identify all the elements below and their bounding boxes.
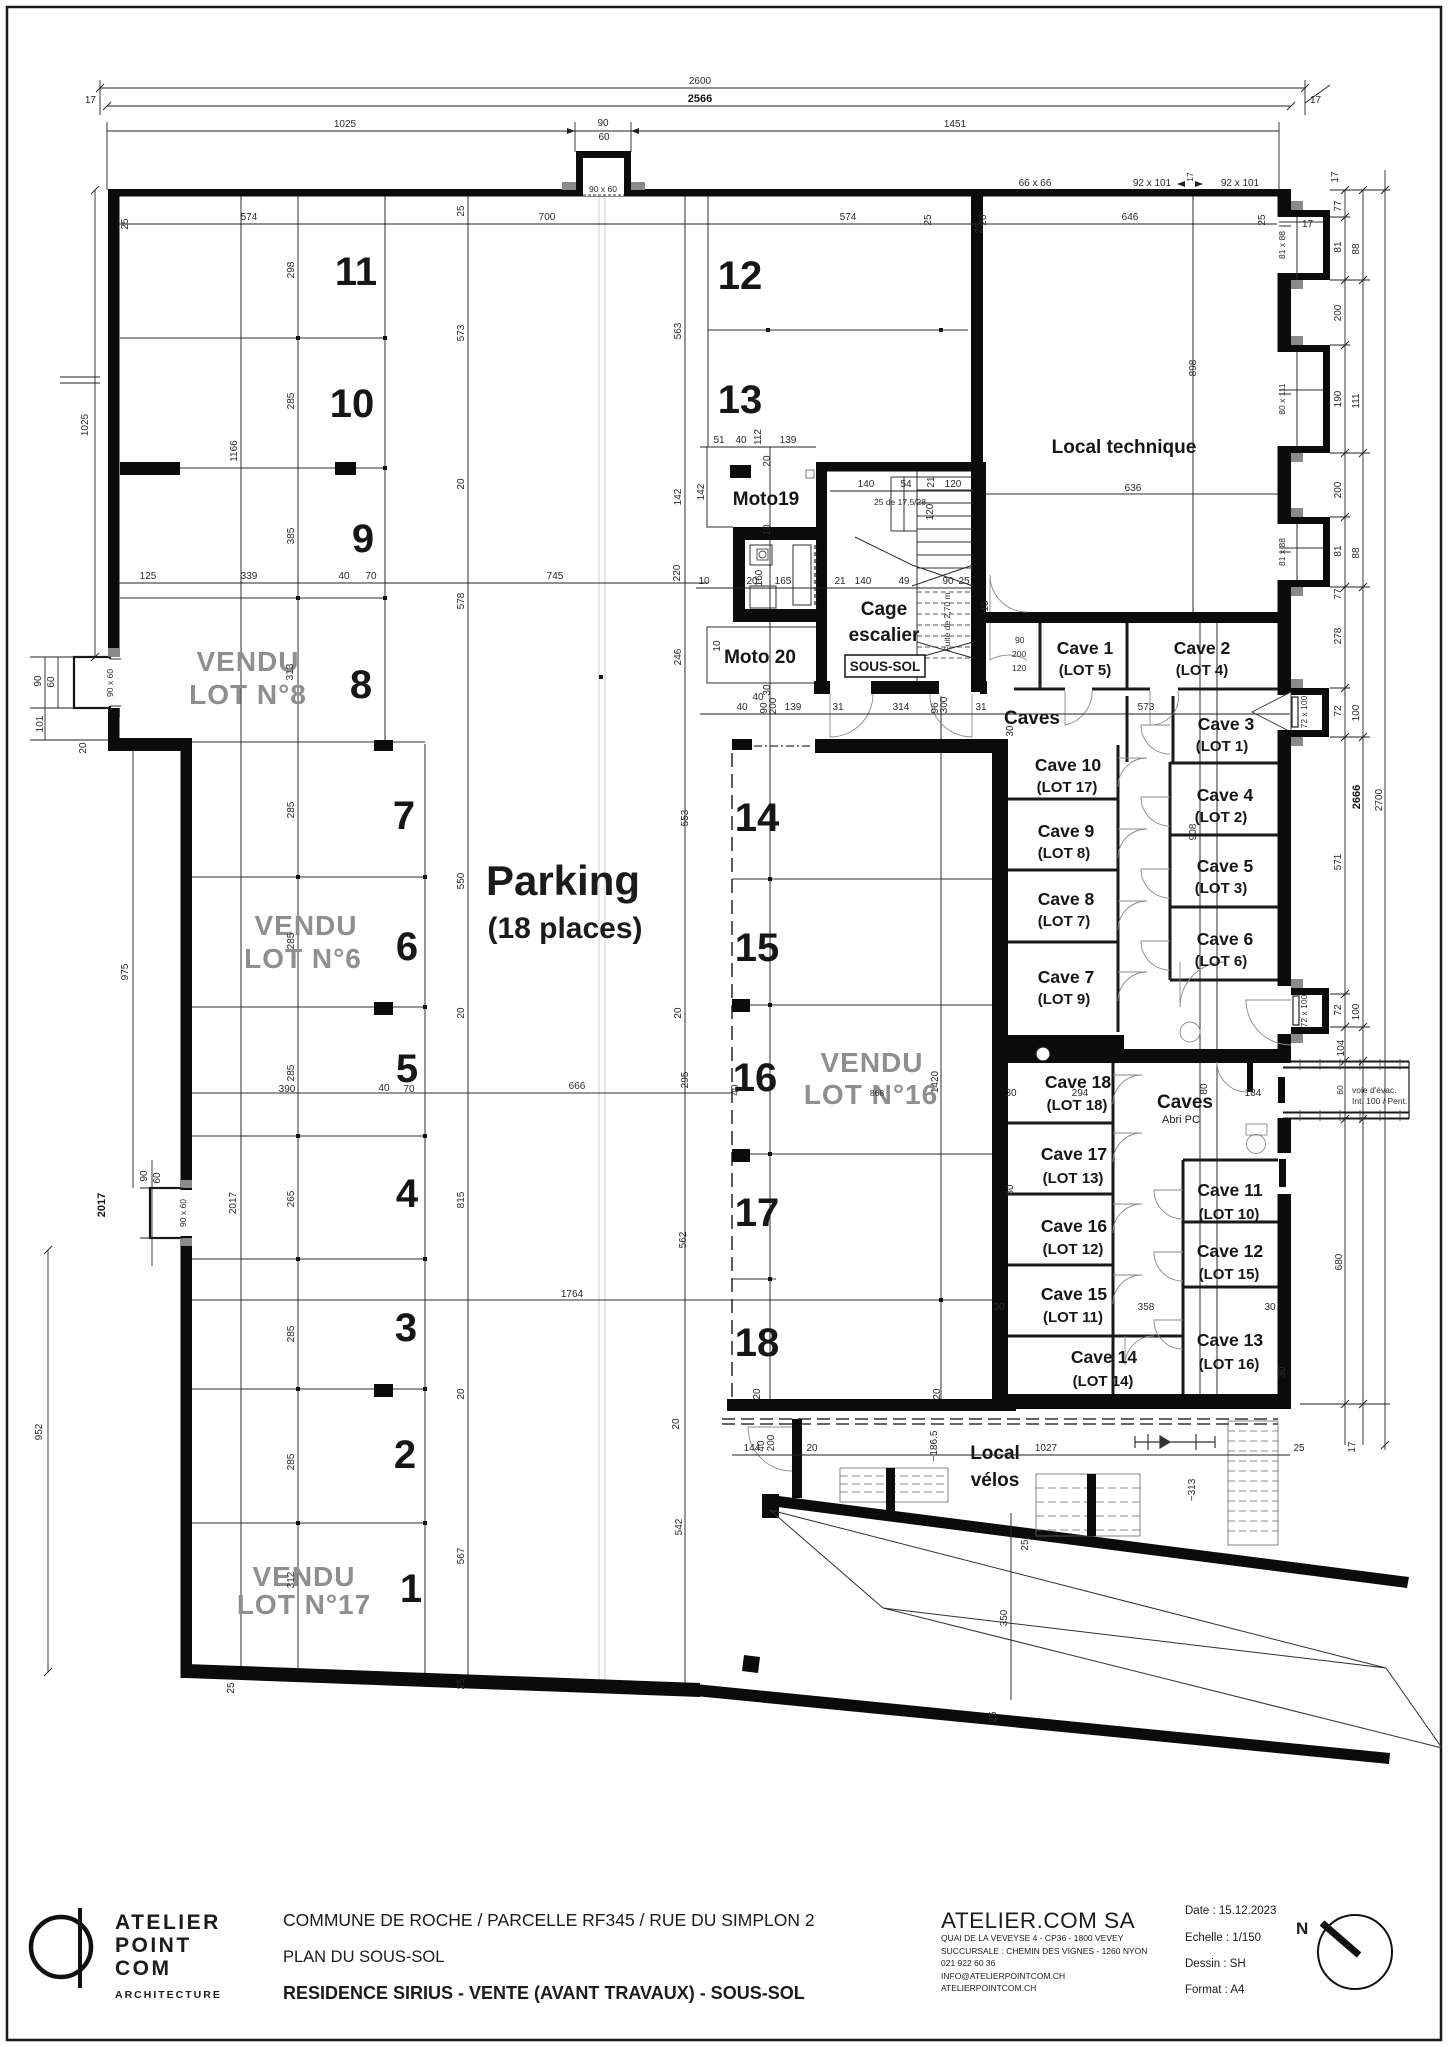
svg-text:17: 17 (1347, 1441, 1358, 1453)
svg-text:21: 21 (926, 476, 937, 488)
svg-text:(LOT 17): (LOT 17) (1037, 779, 1098, 796)
svg-text:142: 142 (696, 483, 707, 500)
svg-text:385: 385 (286, 527, 297, 544)
svg-text:80: 80 (1199, 1083, 1210, 1095)
svg-text:1166: 1166 (229, 440, 240, 462)
svg-text:SUCCURSALE : CHEMIN DES VIGNES: SUCCURSALE : CHEMIN DES VIGNES - 1260 NY… (941, 1946, 1147, 1956)
svg-text:(LOT 9): (LOT 9) (1038, 991, 1091, 1008)
svg-text:70: 70 (365, 571, 377, 582)
svg-text:101: 101 (35, 715, 46, 732)
svg-text:745: 745 (547, 571, 564, 582)
svg-text:(LOT 6): (LOT 6) (1195, 953, 1248, 970)
svg-text:3: 3 (395, 1306, 417, 1350)
svg-text:Local: Local (970, 1443, 1020, 1464)
svg-text:18: 18 (735, 1321, 780, 1365)
svg-text:285: 285 (286, 1453, 297, 1470)
svg-text:285: 285 (286, 932, 297, 949)
svg-text:975: 975 (120, 963, 131, 980)
svg-text:17: 17 (1330, 171, 1341, 183)
svg-text:72 x 100: 72 x 100 (1299, 695, 1309, 728)
svg-text:40: 40 (378, 1083, 390, 1094)
svg-text:(LOT 8): (LOT 8) (1038, 845, 1091, 862)
svg-text:25: 25 (958, 576, 970, 587)
svg-text:8: 8 (350, 663, 372, 707)
svg-text:Cave 10: Cave 10 (1035, 755, 1101, 775)
svg-text:INFO@ATELIERPOINTCOM.CH: INFO@ATELIERPOINTCOM.CH (941, 1971, 1065, 1981)
svg-text:Cave 17: Cave 17 (1041, 1144, 1107, 1164)
svg-text:17: 17 (735, 1191, 780, 1235)
svg-text:(LOT 4): (LOT 4) (1176, 662, 1229, 679)
svg-text:30: 30 (1277, 1366, 1288, 1378)
svg-text:390: 390 (279, 1084, 296, 1095)
svg-text:120: 120 (925, 503, 936, 520)
svg-text:(LOT 15): (LOT 15) (1199, 1266, 1260, 1283)
svg-text:VENDU: VENDU (820, 1047, 923, 1078)
svg-text:104: 104 (1336, 1039, 1347, 1056)
svg-text:021 922 60 36: 021 922 60 36 (941, 1958, 996, 1968)
svg-text:Cave 9: Cave 9 (1038, 821, 1095, 841)
svg-text:77: 77 (1333, 200, 1344, 212)
svg-text:81: 81 (1333, 545, 1344, 557)
svg-text:(LOT 2): (LOT 2) (1195, 809, 1248, 826)
svg-text:(18 places): (18 places) (487, 912, 642, 945)
svg-text:562: 562 (678, 1231, 689, 1248)
svg-text:escalier: escalier (849, 625, 920, 646)
svg-text:200: 200 (768, 697, 779, 714)
svg-text:60: 60 (598, 132, 610, 143)
svg-text:20: 20 (671, 1418, 682, 1430)
svg-text:220: 220 (672, 564, 683, 581)
svg-text:60: 60 (1335, 1085, 1345, 1095)
svg-text:20: 20 (456, 1007, 467, 1019)
svg-text:142: 142 (673, 488, 684, 505)
svg-text:Echelle : 1/150: Echelle : 1/150 (1185, 1932, 1261, 1944)
svg-text:285: 285 (286, 392, 297, 409)
svg-text:Cave 2: Cave 2 (1174, 638, 1231, 658)
svg-text:1027: 1027 (1035, 1443, 1058, 1454)
svg-text:Parking: Parking (486, 857, 640, 904)
svg-text:(LOT 12): (LOT 12) (1043, 1241, 1104, 1258)
svg-text:(LOT 3): (LOT 3) (1195, 880, 1248, 897)
svg-text:30: 30 (1005, 1184, 1016, 1196)
svg-text:573: 573 (1138, 702, 1155, 713)
svg-text:10: 10 (762, 524, 773, 536)
svg-text:30: 30 (762, 684, 773, 696)
svg-text:25: 25 (1020, 1539, 1031, 1551)
svg-text:200: 200 (1012, 649, 1026, 659)
svg-text:SOUS-SOL: SOUS-SOL (850, 659, 921, 674)
svg-text:550: 550 (456, 872, 467, 889)
svg-text:Moto19: Moto19 (733, 489, 800, 510)
svg-text:30: 30 (1005, 1088, 1017, 1099)
svg-text:165: 165 (775, 576, 792, 587)
svg-text:574: 574 (840, 212, 857, 223)
svg-text:680: 680 (1334, 1253, 1345, 1270)
svg-text:COMMUNE DE ROCHE / PARCELLE RF: COMMUNE DE ROCHE / PARCELLE RF345 / RUE … (283, 1910, 815, 1930)
svg-text:350: 350 (999, 1609, 1010, 1626)
svg-text:voie d'évac.: voie d'évac. (1352, 1085, 1397, 1095)
svg-text:4: 4 (396, 1172, 419, 1216)
svg-text:25: 25 (1257, 214, 1268, 226)
svg-text:N: N (1296, 1919, 1308, 1938)
svg-text:Fuite de 2,70 m: Fuite de 2,70 m (942, 592, 952, 651)
svg-text:vélos: vélos (971, 1470, 1020, 1491)
svg-text:Int. 100 / Pent.: Int. 100 / Pent. (1352, 1096, 1407, 1106)
svg-text:COM: COM (115, 1957, 172, 1980)
svg-text:140: 140 (858, 479, 875, 490)
svg-text:25: 25 (456, 205, 467, 217)
svg-text:200: 200 (1333, 304, 1344, 321)
svg-text:(LOT 5): (LOT 5) (1059, 662, 1112, 679)
svg-text:246: 246 (673, 648, 684, 665)
svg-text:(LOT 7): (LOT 7) (1038, 913, 1091, 930)
svg-text:17: 17 (1310, 95, 1322, 106)
svg-text:ARCHITECTURE: ARCHITECTURE (115, 1989, 222, 2001)
svg-text:Cave 14: Cave 14 (1071, 1347, 1137, 1367)
svg-text:40: 40 (730, 1084, 741, 1096)
svg-text:578: 578 (456, 592, 467, 609)
svg-text:Format : A4: Format : A4 (1185, 1984, 1245, 1996)
svg-text:20: 20 (456, 478, 467, 490)
svg-text:2666: 2666 (1351, 785, 1363, 809)
svg-text:636: 636 (1125, 483, 1142, 494)
svg-text:14: 14 (735, 796, 780, 840)
svg-text:100: 100 (1351, 704, 1362, 721)
svg-text:7: 7 (393, 794, 415, 838)
svg-text:125: 125 (140, 571, 157, 582)
svg-text:573: 573 (456, 324, 467, 341)
svg-text:QUAI DE LA VEVEYSE 4 - CP36 -: QUAI DE LA VEVEYSE 4 - CP36 - 1800 VEVEY (941, 1933, 1124, 1943)
svg-text:567: 567 (456, 1547, 467, 1564)
svg-text:81: 81 (1333, 241, 1344, 253)
svg-text:72: 72 (1333, 1004, 1344, 1016)
svg-text:17: 17 (85, 95, 97, 106)
svg-text:25: 25 (923, 214, 934, 226)
svg-text:60: 60 (152, 1172, 163, 1184)
svg-text:300: 300 (939, 696, 950, 713)
svg-text:563: 563 (673, 322, 684, 339)
svg-text:358: 358 (1138, 1302, 1155, 1313)
svg-text:LOT N°17: LOT N°17 (237, 1589, 371, 1620)
svg-text:574: 574 (241, 212, 258, 223)
svg-text:Cave 1: Cave 1 (1057, 638, 1114, 658)
svg-text:298: 298 (286, 261, 297, 278)
svg-text:90: 90 (139, 1170, 150, 1182)
svg-text:Date : 15.12.2023: Date : 15.12.2023 (1185, 1905, 1276, 1917)
svg-text:Moto 20: Moto 20 (724, 647, 796, 668)
svg-text:92 x 101: 92 x 101 (1221, 178, 1260, 189)
svg-text:898: 898 (1188, 359, 1199, 376)
svg-text:20: 20 (456, 1388, 467, 1400)
svg-text:17: 17 (1185, 172, 1195, 182)
svg-text:~186.5: ~186.5 (929, 1430, 940, 1461)
svg-text:120: 120 (945, 479, 962, 490)
svg-text:15: 15 (980, 600, 991, 612)
svg-text:90 x 60: 90 x 60 (178, 1199, 188, 1227)
svg-text:20: 20 (762, 455, 773, 467)
svg-text:PLAN DU SOUS-SOL: PLAN DU SOUS-SOL (283, 1948, 444, 1966)
svg-text:25: 25 (974, 222, 985, 234)
svg-text:Cave 5: Cave 5 (1197, 856, 1254, 876)
svg-text:666: 666 (569, 1081, 586, 1092)
svg-text:952: 952 (34, 1423, 45, 1440)
svg-text:139: 139 (785, 702, 802, 713)
svg-text:51: 51 (713, 435, 725, 446)
svg-text:POINT: POINT (115, 1934, 192, 1957)
svg-text:LOT N°8: LOT N°8 (189, 679, 307, 710)
svg-text:31: 31 (832, 702, 844, 713)
svg-text:(LOT 11): (LOT 11) (1043, 1309, 1103, 1326)
svg-text:2600: 2600 (689, 76, 712, 87)
svg-text:30: 30 (993, 1302, 1005, 1313)
svg-text:312: 312 (286, 1571, 297, 1588)
svg-text:20: 20 (752, 1388, 763, 1400)
svg-text:25: 25 (226, 1682, 237, 1694)
svg-text:72: 72 (1333, 705, 1344, 717)
svg-text:120: 120 (1012, 663, 1026, 673)
svg-text:184: 184 (1245, 1088, 1262, 1099)
svg-text:265: 265 (286, 1190, 297, 1207)
svg-text:1451: 1451 (944, 119, 967, 130)
svg-text:190: 190 (1333, 390, 1344, 407)
svg-text:90: 90 (597, 118, 609, 129)
svg-text:1: 1 (400, 1567, 422, 1611)
svg-text:1420: 1420 (930, 1070, 941, 1093)
svg-text:339: 339 (241, 571, 258, 582)
svg-text:25: 25 (456, 1678, 467, 1690)
svg-text:80 x 111: 80 x 111 (1277, 383, 1287, 415)
svg-text:Local technique: Local technique (1052, 437, 1197, 458)
svg-text:1025: 1025 (334, 119, 357, 130)
svg-text:21: 21 (834, 576, 846, 587)
svg-text:285: 285 (286, 1325, 297, 1342)
svg-text:111: 111 (1351, 393, 1362, 409)
svg-text:278: 278 (1333, 627, 1344, 644)
svg-text:2700: 2700 (1374, 788, 1385, 811)
svg-text:(LOT 13): (LOT 13) (1043, 1170, 1104, 1187)
svg-text:10: 10 (698, 576, 710, 587)
svg-text:54: 54 (900, 479, 912, 490)
svg-text:1764: 1764 (561, 1289, 584, 1300)
svg-text:646: 646 (1122, 212, 1139, 223)
svg-text:90 x 60: 90 x 60 (105, 669, 115, 697)
svg-text:RESIDENCE SIRIUS - VENTE (AVAN: RESIDENCE SIRIUS - VENTE (AVANT TRAVAUX)… (283, 1983, 805, 2003)
svg-text:295: 295 (680, 1071, 691, 1088)
svg-text:25: 25 (1293, 1443, 1305, 1454)
svg-text:LOT N°6: LOT N°6 (244, 943, 362, 974)
svg-text:ATELIER.COM SA: ATELIER.COM SA (941, 1908, 1135, 1933)
svg-text:30: 30 (1005, 725, 1016, 737)
svg-text:Abri PC: Abri PC (1162, 1114, 1200, 1126)
svg-text:~313: ~313 (1187, 1478, 1198, 1501)
svg-text:908: 908 (1188, 823, 1199, 840)
svg-text:88: 88 (1351, 243, 1362, 255)
svg-text:Cave 12: Cave 12 (1197, 1241, 1263, 1261)
svg-text:1025: 1025 (80, 413, 91, 436)
svg-text:15: 15 (735, 926, 780, 970)
svg-text:25: 25 (120, 218, 131, 230)
svg-text:10: 10 (330, 382, 375, 426)
svg-text:Cave 16: Cave 16 (1041, 1216, 1107, 1236)
svg-text:542: 542 (674, 1518, 685, 1535)
svg-text:88: 88 (1351, 547, 1362, 559)
svg-text:285: 285 (286, 1064, 297, 1081)
svg-text:17: 17 (1302, 219, 1314, 230)
svg-text:ATELIER: ATELIER (115, 1911, 221, 1934)
svg-text:20: 20 (78, 742, 89, 754)
svg-text:6: 6 (396, 925, 418, 969)
svg-text:70: 70 (403, 1084, 415, 1095)
svg-text:Cave 7: Cave 7 (1038, 967, 1094, 987)
svg-text:Cave 15: Cave 15 (1041, 1284, 1107, 1304)
svg-text:12: 12 (718, 254, 763, 298)
svg-text:13: 13 (718, 378, 763, 422)
svg-text:294: 294 (1072, 1088, 1089, 1099)
svg-text:25 de 17,5/28: 25 de 17,5/28 (874, 497, 926, 507)
svg-text:868: 868 (870, 1088, 884, 1098)
svg-text:60: 60 (46, 676, 57, 688)
svg-text:25: 25 (988, 1711, 999, 1723)
svg-text:(LOT 10): (LOT 10) (1199, 1206, 1260, 1223)
svg-text:2566: 2566 (688, 93, 712, 105)
svg-text:20: 20 (932, 1388, 943, 1400)
svg-text:VENDU: VENDU (252, 1561, 355, 1592)
svg-text:700: 700 (539, 212, 556, 223)
svg-text:Cave 3: Cave 3 (1198, 714, 1255, 734)
svg-text:815: 815 (456, 1191, 467, 1208)
svg-text:90: 90 (942, 576, 954, 587)
svg-text:Cave 13: Cave 13 (1197, 1330, 1263, 1350)
svg-text:ATELIERPOINTCOM.CH: ATELIERPOINTCOM.CH (941, 1983, 1036, 1993)
svg-text:49: 49 (898, 576, 910, 587)
svg-text:66 x 66: 66 x 66 (1019, 178, 1052, 189)
svg-text:72 x 100: 72 x 100 (1299, 994, 1309, 1027)
svg-text:Dessin : SH: Dessin : SH (1185, 1958, 1246, 1970)
svg-text:Cage: Cage (861, 599, 907, 620)
svg-text:90: 90 (33, 675, 44, 687)
svg-text:40: 40 (736, 702, 748, 713)
svg-text:Cave 8: Cave 8 (1038, 889, 1095, 909)
svg-text:81 x 88: 81 x 88 (1277, 538, 1287, 566)
svg-text:2: 2 (394, 1433, 416, 1477)
svg-text:(LOT 1): (LOT 1) (1196, 738, 1249, 755)
svg-text:314: 314 (893, 702, 910, 713)
svg-text:Cave 6: Cave 6 (1197, 929, 1254, 949)
svg-text:100: 100 (1351, 1003, 1362, 1020)
svg-text:90 x 60: 90 x 60 (589, 184, 617, 194)
svg-text:20: 20 (673, 1007, 684, 1019)
svg-text:2017: 2017 (228, 1191, 239, 1214)
svg-text:40: 40 (338, 571, 350, 582)
svg-text:571: 571 (1333, 853, 1344, 870)
svg-text:10: 10 (712, 640, 723, 652)
svg-text:81 x 88: 81 x 88 (1277, 231, 1287, 259)
svg-text:2017: 2017 (96, 1193, 108, 1217)
svg-text:VENDU: VENDU (254, 910, 357, 941)
svg-text:11: 11 (335, 250, 377, 294)
svg-text:285: 285 (286, 801, 297, 818)
svg-text:(LOT 18): (LOT 18) (1047, 1097, 1108, 1114)
svg-text:140: 140 (855, 576, 872, 587)
svg-text:139: 139 (780, 435, 797, 446)
svg-text:40: 40 (735, 435, 747, 446)
svg-text:30: 30 (1264, 1302, 1276, 1313)
svg-text:20: 20 (806, 1443, 818, 1454)
svg-text:200: 200 (766, 1434, 777, 1451)
svg-text:200: 200 (1333, 481, 1344, 498)
svg-text:Cave 11: Cave 11 (1197, 1180, 1262, 1200)
svg-text:(LOT 16): (LOT 16) (1199, 1356, 1260, 1373)
svg-text:160: 160 (754, 569, 765, 586)
svg-text:90: 90 (1015, 635, 1025, 645)
svg-text:112: 112 (753, 429, 764, 445)
svg-text:31: 31 (975, 702, 987, 713)
svg-text:313: 313 (285, 663, 296, 680)
svg-text:(LOT 14): (LOT 14) (1073, 1373, 1134, 1390)
svg-text:9: 9 (352, 517, 374, 561)
svg-text:92 x 101: 92 x 101 (1133, 178, 1172, 189)
svg-text:Cave 4: Cave 4 (1197, 785, 1254, 805)
svg-text:553: 553 (680, 809, 691, 826)
